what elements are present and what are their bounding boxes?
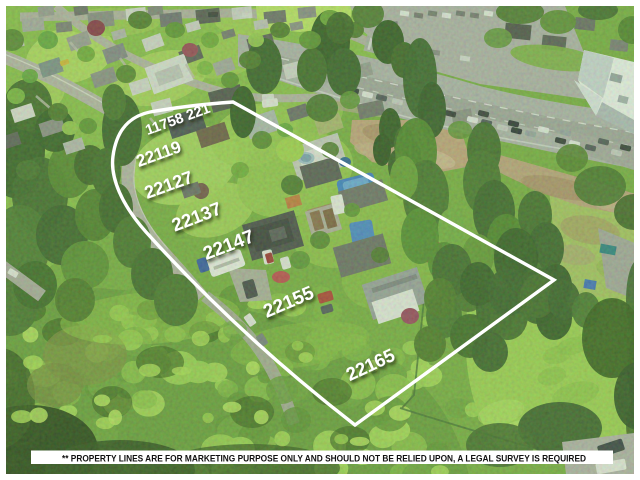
svg-text:** PROPERTY LINES ARE FOR MARK: ** PROPERTY LINES ARE FOR MARKETING PURP… xyxy=(62,453,586,464)
